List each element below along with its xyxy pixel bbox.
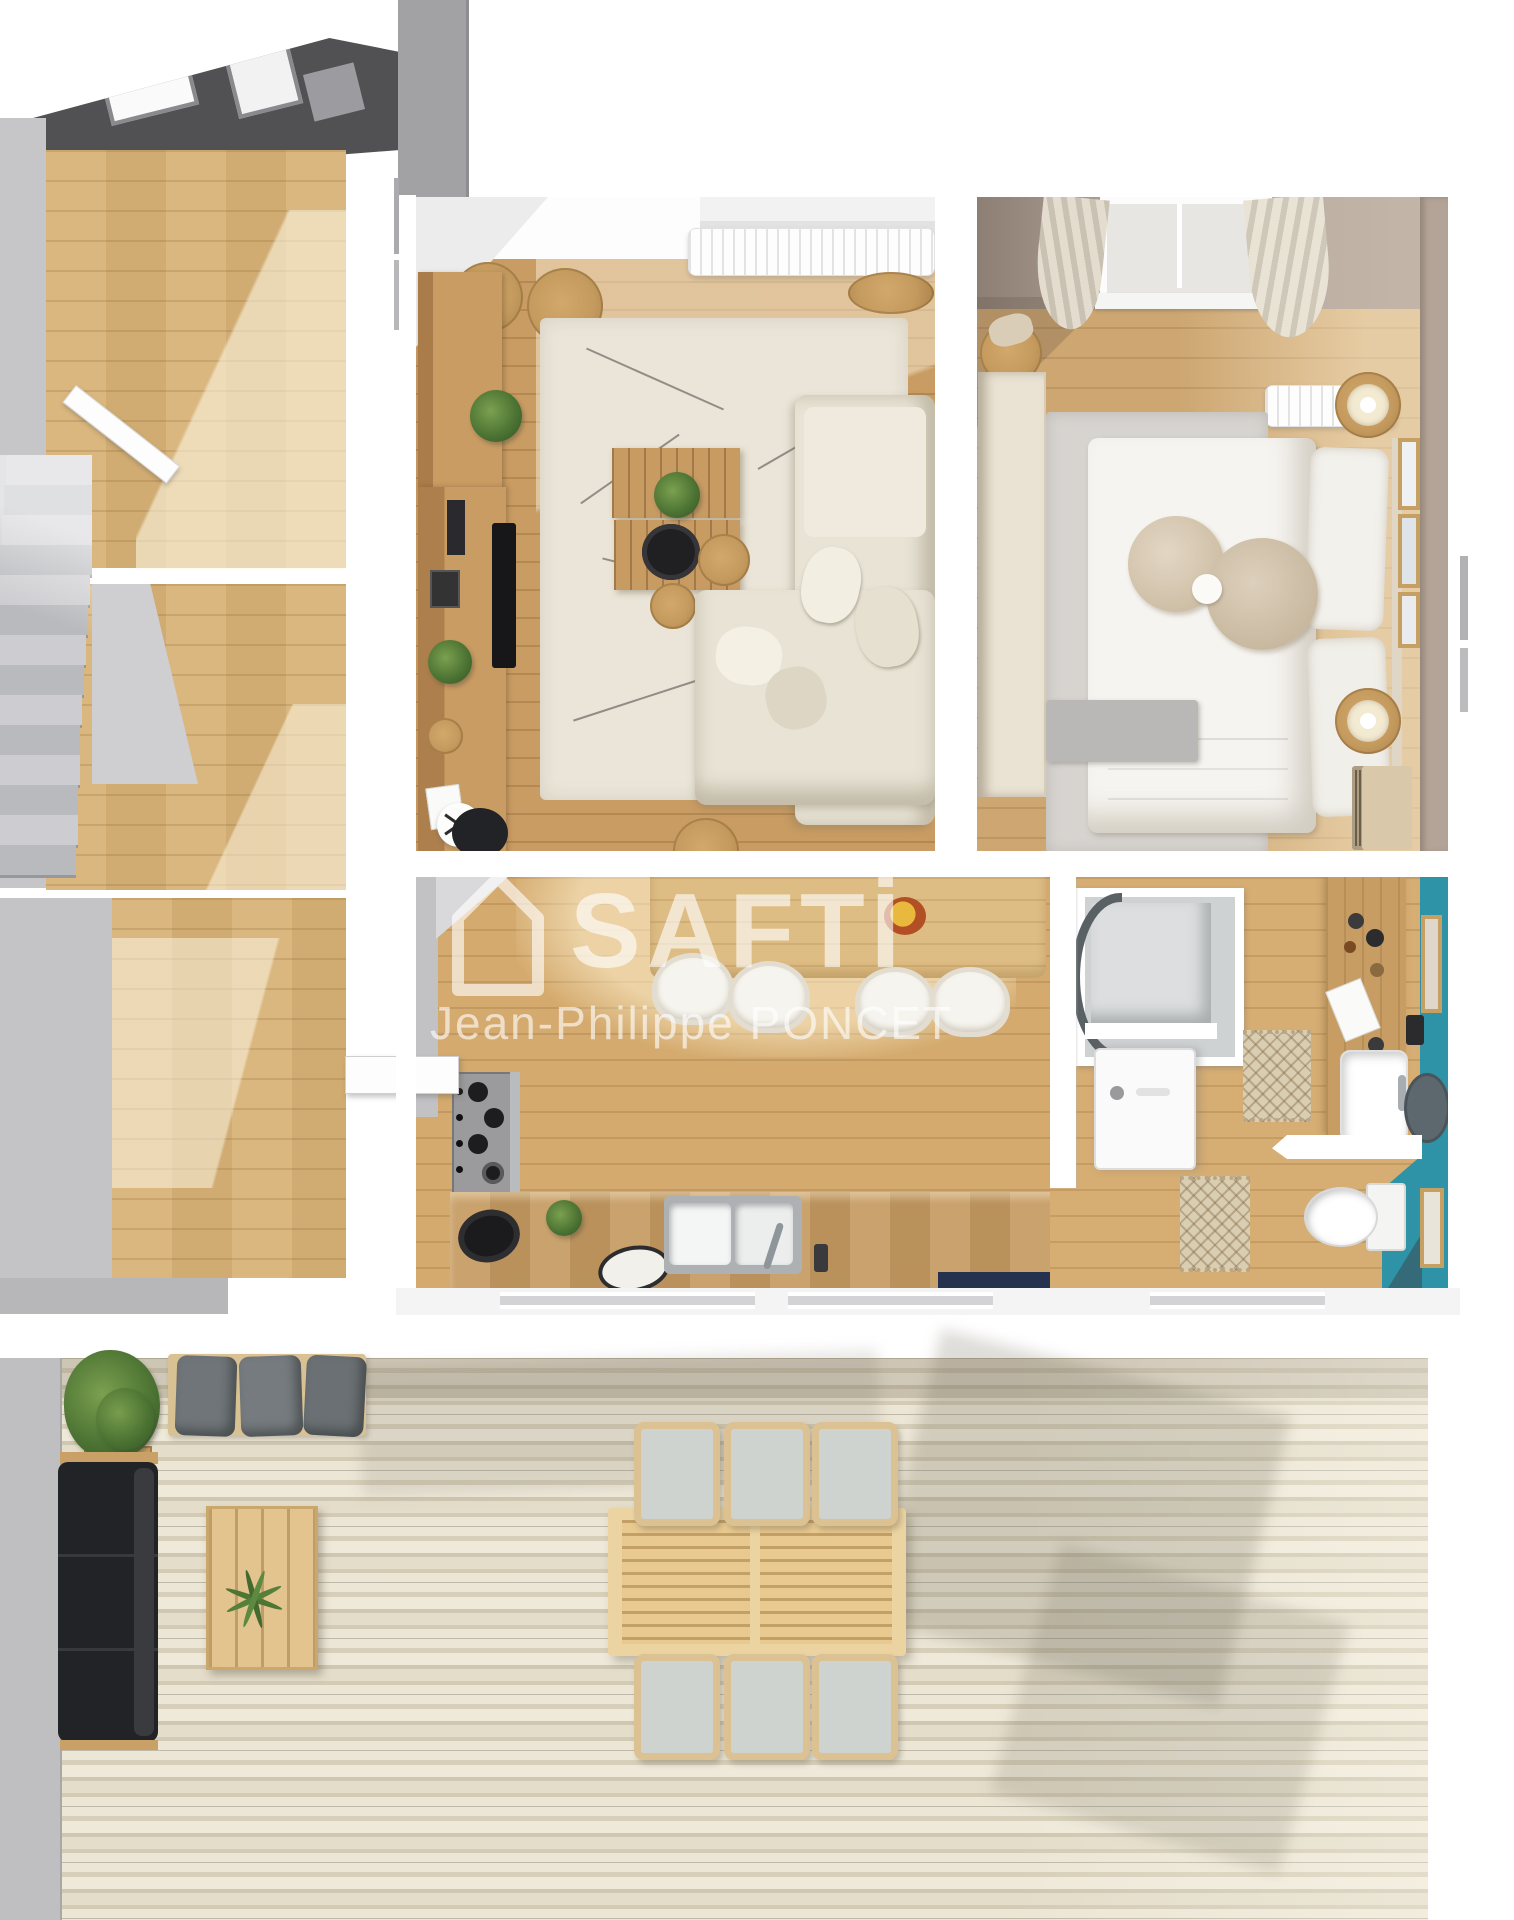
bath-rug bbox=[1180, 1176, 1250, 1272]
towel bbox=[1325, 978, 1380, 1042]
wall-mirror-frame bbox=[1421, 915, 1442, 1013]
terrace bbox=[0, 1358, 1514, 1920]
bath-rug bbox=[1243, 1030, 1311, 1122]
bed-end-bench bbox=[1046, 700, 1198, 762]
toiletry-jar bbox=[1370, 963, 1384, 977]
black-tray bbox=[642, 524, 700, 580]
small-ball-cushion bbox=[1192, 574, 1222, 604]
terrace-left-edge bbox=[0, 1358, 62, 1920]
wall-block bbox=[398, 0, 469, 200]
terrace-chair bbox=[634, 1422, 720, 1526]
kitchen-sink bbox=[664, 1196, 802, 1274]
bedroom-right-wall bbox=[1420, 197, 1448, 853]
sideboard bbox=[418, 272, 502, 487]
counter-plant bbox=[546, 1200, 582, 1236]
watermark: SAFTİ Jean-Philippe PONCET bbox=[420, 860, 1120, 1080]
unit-left-wall bbox=[396, 195, 416, 1288]
terrace-chair bbox=[812, 1654, 898, 1760]
picture-frame bbox=[1398, 592, 1420, 648]
watermark-agent: Jean-Philippe PONCET bbox=[430, 1000, 953, 1046]
hall-bottom-slab bbox=[0, 1278, 228, 1314]
bench-cushion bbox=[175, 1355, 238, 1437]
jute-tray bbox=[698, 534, 750, 586]
jute-rug-small bbox=[427, 718, 463, 754]
floor-plan-render: SAFTİ Jean-Philippe PONCET bbox=[0, 0, 1514, 1920]
terrace-chair bbox=[634, 1654, 720, 1760]
toiletry-bottle bbox=[1344, 941, 1356, 953]
floating-shelf bbox=[1272, 1135, 1422, 1159]
sunlight-patch bbox=[136, 210, 346, 570]
bedroom bbox=[977, 197, 1448, 853]
picture-frame bbox=[447, 500, 465, 555]
picture-frame bbox=[1420, 1188, 1444, 1268]
skylight-window bbox=[223, 37, 303, 119]
tv-flatscreen bbox=[492, 523, 516, 668]
terrace-chair bbox=[812, 1422, 898, 1526]
table-plant bbox=[222, 1568, 286, 1632]
picture-frame bbox=[1398, 438, 1420, 510]
table-plant bbox=[654, 472, 700, 518]
staircase bbox=[0, 455, 92, 875]
sofa-cushion bbox=[804, 407, 926, 537]
black-pouf bbox=[452, 808, 508, 853]
sunlight-patch bbox=[112, 938, 346, 1188]
window-sill-radiator bbox=[1095, 293, 1263, 309]
living-room-floor bbox=[416, 197, 935, 853]
door-mat bbox=[938, 1272, 1050, 1288]
roof-panel bbox=[303, 62, 365, 121]
round-mirror bbox=[1404, 1073, 1448, 1143]
wall-edge bbox=[394, 260, 399, 330]
gas-stove bbox=[452, 1072, 514, 1196]
terrace-plant-leaf bbox=[96, 1388, 154, 1450]
picture-frame bbox=[1398, 514, 1420, 588]
terrace-chair bbox=[724, 1422, 810, 1526]
wall-edge bbox=[394, 178, 399, 254]
black-fruit-bowl bbox=[453, 1203, 526, 1268]
toiletry-bottle bbox=[1366, 929, 1384, 947]
house-outline-icon bbox=[432, 868, 564, 996]
soap-dispenser bbox=[1406, 1015, 1424, 1045]
wall-edge bbox=[1460, 648, 1468, 712]
stair-light bbox=[0, 455, 92, 875]
bench-cushion bbox=[303, 1354, 367, 1437]
dishwasher-edge bbox=[510, 1072, 520, 1192]
terrace-chair bbox=[724, 1654, 810, 1760]
serving-tray bbox=[595, 1240, 674, 1288]
window bbox=[1150, 1292, 1325, 1309]
jute-tray bbox=[650, 583, 696, 629]
radiator bbox=[688, 228, 935, 276]
hall-concrete bbox=[0, 898, 112, 1280]
bench-cushion bbox=[239, 1355, 304, 1437]
potted-plant bbox=[428, 640, 472, 684]
skylight-window bbox=[97, 44, 199, 126]
jute-rug bbox=[848, 272, 934, 314]
hall-floor-lower bbox=[112, 898, 346, 1278]
toiletry-bottle bbox=[1348, 913, 1364, 929]
window bbox=[500, 1292, 755, 1309]
lamp-top bbox=[1360, 397, 1376, 413]
round-cushion bbox=[1206, 538, 1318, 650]
bed-pillow bbox=[1305, 447, 1389, 632]
wardrobe bbox=[978, 372, 1046, 797]
lamp-top bbox=[1360, 713, 1376, 729]
soap-bottle bbox=[814, 1244, 828, 1272]
dresser bbox=[1352, 766, 1412, 850]
sunlight-patch bbox=[176, 704, 346, 890]
watermark-brand: SAFTİ bbox=[570, 878, 906, 984]
black-sofa bbox=[58, 1452, 162, 1752]
window bbox=[788, 1292, 993, 1309]
toilet bbox=[1304, 1183, 1406, 1249]
decor-frame bbox=[430, 570, 460, 608]
potted-plant bbox=[470, 390, 522, 442]
jute-rug bbox=[673, 818, 739, 853]
unit-bottom-wall bbox=[396, 1288, 1460, 1315]
terrace-dining-table bbox=[608, 1508, 906, 1656]
wall-edge bbox=[1460, 556, 1468, 640]
